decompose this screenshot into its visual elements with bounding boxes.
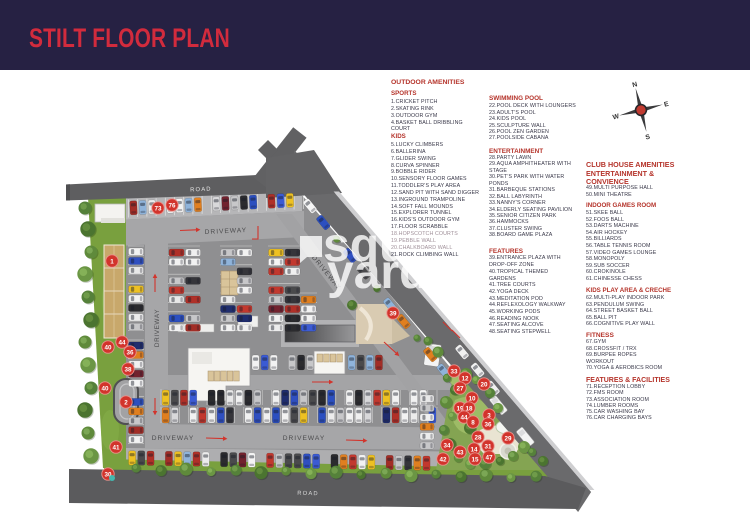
svg-text:39: 39	[389, 310, 397, 317]
svg-text:33: 33	[450, 368, 458, 375]
svg-text:38: 38	[124, 366, 132, 373]
svg-text:10: 10	[468, 395, 476, 402]
svg-text:36: 36	[484, 421, 492, 428]
svg-text:47: 47	[485, 454, 493, 461]
svg-text:14: 14	[470, 446, 478, 453]
svg-text:44: 44	[118, 339, 126, 346]
svg-text:31: 31	[484, 443, 492, 450]
svg-text:41: 41	[112, 444, 120, 451]
svg-text:40: 40	[101, 385, 109, 392]
svg-text:76: 76	[168, 202, 176, 209]
svg-text:43: 43	[456, 449, 464, 456]
svg-text:1: 1	[110, 258, 114, 265]
svg-text:15: 15	[471, 456, 479, 463]
svg-text:36: 36	[126, 349, 134, 356]
svg-text:2: 2	[124, 399, 128, 406]
svg-text:28: 28	[474, 434, 482, 441]
svg-text:12: 12	[461, 375, 469, 382]
svg-text:20: 20	[480, 381, 488, 388]
svg-text:8: 8	[471, 419, 475, 426]
svg-text:27: 27	[456, 385, 464, 392]
svg-text:DRIVEWAY: DRIVEWAY	[152, 435, 194, 442]
svg-text:DRIVEWAY: DRIVEWAY	[154, 309, 161, 347]
svg-text:ROAD: ROAD	[297, 491, 319, 497]
svg-text:40: 40	[104, 344, 112, 351]
svg-text:42: 42	[439, 456, 447, 463]
svg-text:DRIVEWAY: DRIVEWAY	[283, 435, 325, 442]
svg-text:34: 34	[443, 442, 451, 449]
svg-text:29: 29	[504, 435, 512, 442]
svg-text:ROAD: ROAD	[190, 186, 212, 193]
svg-text:73: 73	[154, 205, 162, 212]
